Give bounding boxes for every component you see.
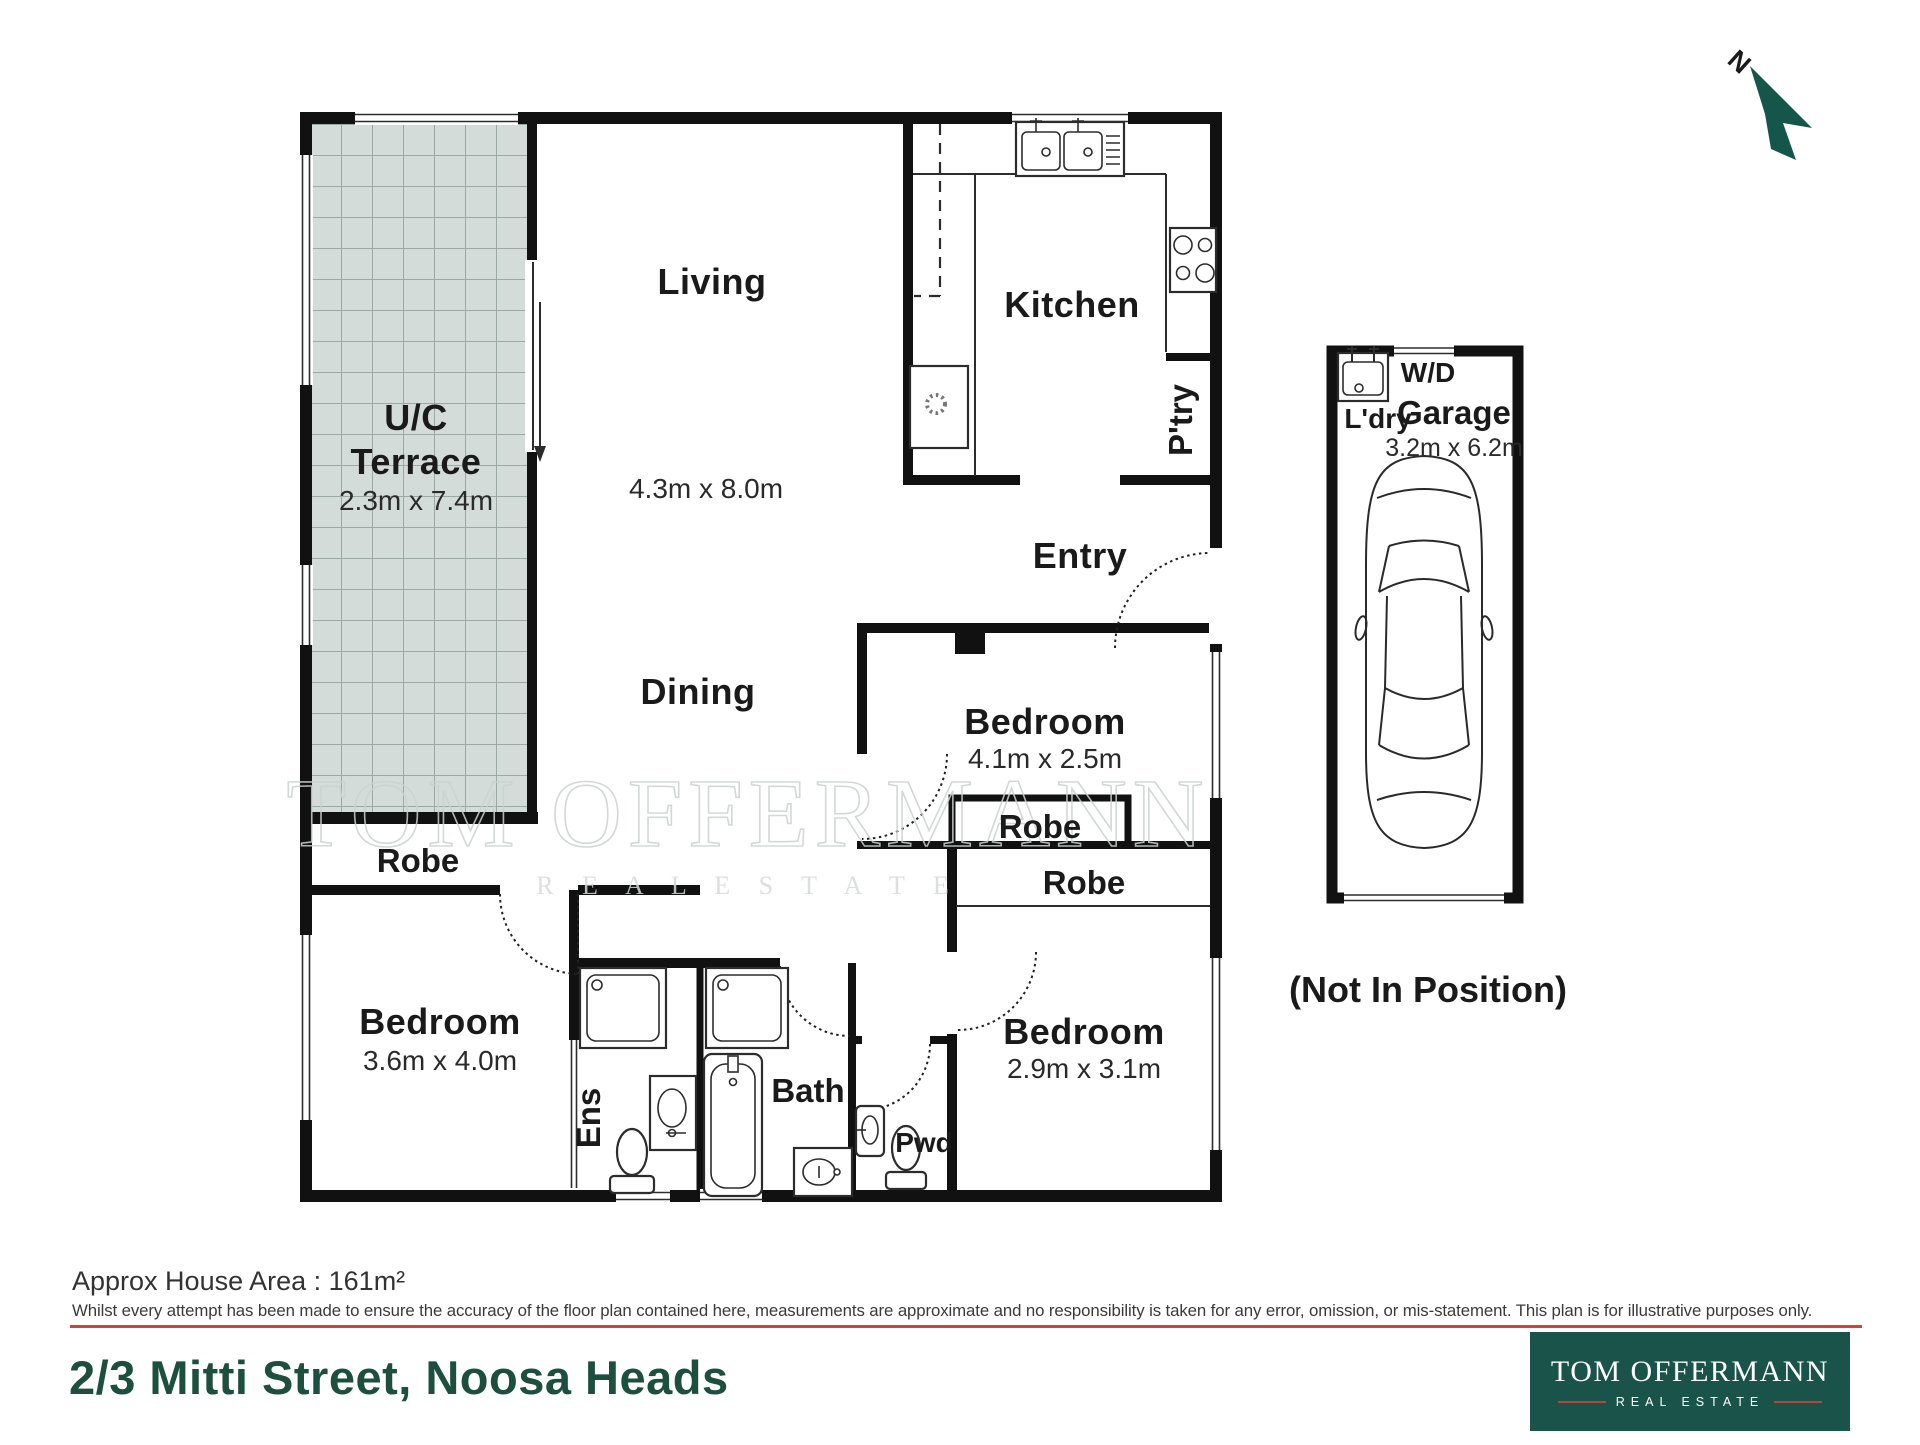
garage-top-window xyxy=(1394,344,1454,357)
window-bed2-right xyxy=(1209,958,1223,1150)
window-terrace-left-1 xyxy=(299,155,313,385)
north-arrow-icon: N xyxy=(1722,44,1812,160)
agency-logo-subtitle: REAL ESTATE xyxy=(1616,1395,1764,1409)
oven-fan-icon xyxy=(910,366,968,448)
kitchen-label: Kitchen xyxy=(1004,284,1140,325)
disclaimer-text: Whilst every attempt has been made to en… xyxy=(72,1301,1812,1321)
pantry-label: P'try xyxy=(1162,383,1199,456)
entry-label: Entry xyxy=(1033,535,1128,576)
watermark-line2: R E A L E S T A T E xyxy=(536,871,960,900)
vanity-icon xyxy=(794,1148,852,1196)
property-address: 2/3 Mitti Street, Noosa Heads xyxy=(69,1350,729,1405)
north-label: N xyxy=(1722,44,1757,79)
bed1-dims: 4.1m x 2.5m xyxy=(968,743,1122,774)
living-label: Living xyxy=(658,261,767,302)
shower-icon xyxy=(706,968,788,1048)
logo-rule-left xyxy=(1558,1401,1606,1403)
window-terrace-left-2 xyxy=(299,565,313,645)
bed3-label: Bedroom xyxy=(359,1001,521,1042)
ens-fixtures xyxy=(580,968,696,1193)
bathtub-icon xyxy=(704,1054,762,1196)
house-area-text: Approx House Area : 161m² xyxy=(72,1266,405,1297)
garage-door xyxy=(1344,891,1504,905)
pwd-label: Pwd xyxy=(895,1127,953,1158)
car-icon xyxy=(1354,456,1495,848)
robe2-label: Robe xyxy=(1043,864,1126,901)
sink-icon xyxy=(1016,118,1124,176)
cooktop-icon xyxy=(1170,228,1216,292)
toilet-icon xyxy=(610,1129,654,1193)
bath-door-arc xyxy=(780,966,850,1036)
divider-rule xyxy=(70,1325,1862,1328)
bed1-label: Bedroom xyxy=(964,701,1126,742)
agency-logo-name: TOM OFFERMANN xyxy=(1551,1355,1829,1389)
overhead-dashed-line xyxy=(914,124,940,296)
terrace-label-1: U/C xyxy=(384,397,448,438)
bed3-dims: 3.6m x 4.0m xyxy=(363,1045,517,1076)
ens-label: Ens xyxy=(570,1088,607,1149)
garage-dims: 3.2m x 6.2m xyxy=(1385,434,1523,462)
robe1-label: Robe xyxy=(999,808,1082,845)
bed2-dims: 2.9m x 3.1m xyxy=(1007,1053,1161,1084)
window-terrace-top xyxy=(355,111,518,125)
entry-door-arc xyxy=(1115,553,1210,648)
wd-label: W/D xyxy=(1401,357,1455,388)
bath-label: Bath xyxy=(771,1072,844,1109)
robe-left-label: Robe xyxy=(377,842,460,879)
window-bed1-right xyxy=(1209,652,1223,798)
pwd-door-arc xyxy=(864,1044,930,1110)
garage-label: Garage xyxy=(1397,394,1511,431)
terrace-label-2: Terrace xyxy=(351,441,482,482)
terrace-dims: 2.3m x 7.4m xyxy=(339,485,493,516)
logo-rule-right xyxy=(1774,1401,1822,1403)
dining-label: Dining xyxy=(641,671,756,712)
not-in-position-label: (Not In Position) xyxy=(1289,969,1567,1010)
window-bed3-left xyxy=(299,935,313,1120)
basin-icon xyxy=(856,1106,884,1156)
living-dims: 4.3m x 8.0m xyxy=(629,473,783,504)
laundry-tub-icon xyxy=(1338,346,1388,401)
bed3-door-arc xyxy=(500,894,578,974)
floorplan-page: N TOM OFFERMANN R E A L E S T A T E U/C … xyxy=(0,0,1920,1440)
wall-stub xyxy=(955,628,985,654)
shower-icon xyxy=(580,968,666,1048)
floorplan-canvas: N TOM OFFERMANN R E A L E S T A T E U/C … xyxy=(0,0,1920,1440)
bed2-label: Bedroom xyxy=(1003,1011,1165,1052)
agency-logo: TOM OFFERMANN REAL ESTATE xyxy=(1530,1332,1850,1431)
vanity-icon xyxy=(650,1076,696,1150)
